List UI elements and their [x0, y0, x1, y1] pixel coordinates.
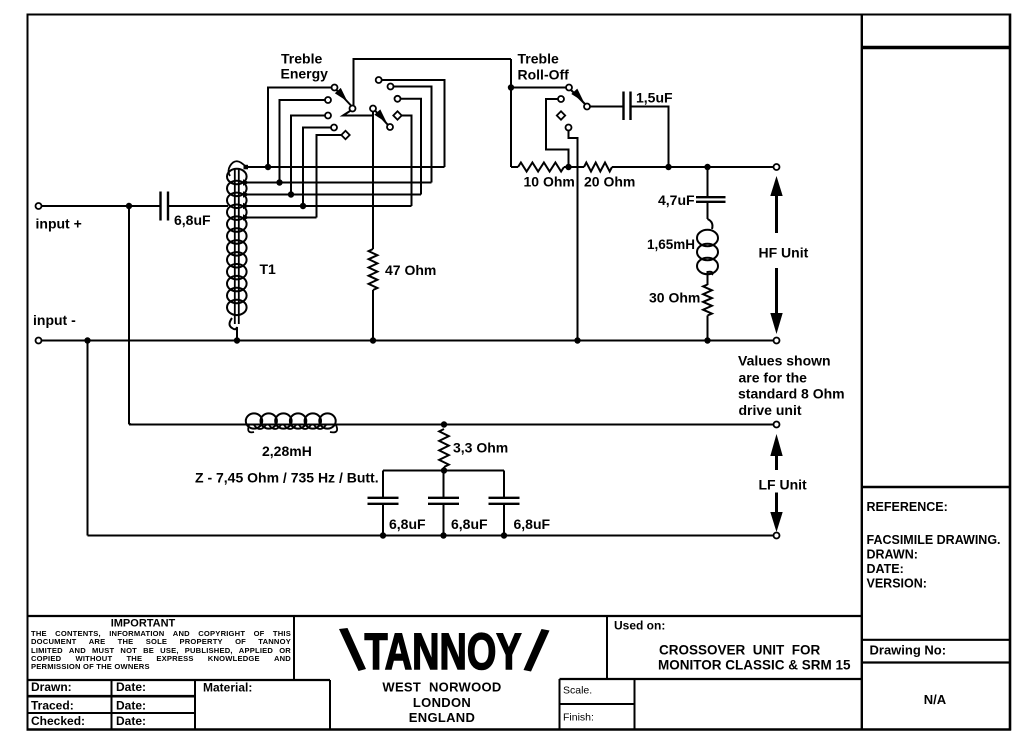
svg-text:standard 8 Ohm: standard 8 Ohm	[738, 386, 845, 402]
svg-text:Date:: Date:	[116, 680, 146, 694]
svg-text:Energy: Energy	[281, 66, 329, 82]
svg-text:6,8uF: 6,8uF	[514, 516, 551, 532]
svg-text:3,3 Ohm: 3,3 Ohm	[453, 440, 508, 456]
svg-text:DRAWN:: DRAWN:	[867, 548, 918, 562]
svg-text:Finish:: Finish:	[563, 712, 594, 724]
svg-text:input -: input -	[33, 312, 76, 328]
svg-text:Date:: Date:	[116, 714, 146, 728]
svg-text:47 Ohm: 47 Ohm	[385, 262, 436, 278]
svg-text:Used on:: Used on:	[614, 619, 665, 633]
svg-text:drive unit: drive unit	[739, 402, 802, 418]
svg-text:CROSSOVER UNIT FOR: CROSSOVER UNIT FOR	[659, 643, 821, 658]
svg-text:20 Ohm: 20 Ohm	[584, 174, 635, 190]
svg-text:VERSION:: VERSION:	[867, 577, 927, 591]
svg-text:IMPORTANT: IMPORTANT	[111, 618, 176, 630]
svg-text:30 Ohm: 30 Ohm	[649, 290, 700, 306]
svg-text:2,28mH: 2,28mH	[262, 443, 312, 459]
svg-text:N/A: N/A	[924, 692, 947, 707]
svg-text:are for the: are for the	[739, 370, 808, 386]
svg-text:Z - 7,45 Ohm / 735 Hz / Butt.: Z - 7,45 Ohm / 735 Hz / Butt.	[195, 470, 379, 486]
svg-text:Date:: Date:	[116, 699, 146, 713]
svg-text:Drawn:: Drawn:	[31, 680, 72, 694]
svg-text:1,5uF: 1,5uF	[636, 90, 673, 106]
svg-text:T1: T1	[260, 261, 277, 277]
svg-text:Scale.: Scale.	[563, 685, 592, 697]
svg-text:Roll-Off: Roll-Off	[518, 67, 570, 83]
svg-text:Treble: Treble	[281, 51, 322, 67]
svg-text:WEST NORWOOD: WEST NORWOOD	[382, 680, 501, 695]
svg-text:Checked:: Checked:	[31, 714, 85, 728]
svg-text:1,65mH: 1,65mH	[647, 237, 695, 252]
svg-text:DATE:: DATE:	[867, 562, 904, 576]
svg-text:Treble: Treble	[518, 51, 559, 67]
svg-text:Material:: Material:	[203, 681, 252, 695]
svg-text:input +: input +	[36, 216, 82, 232]
svg-text:Values shown: Values shown	[738, 353, 831, 369]
svg-text:6,8uF: 6,8uF	[451, 516, 488, 532]
svg-text:FACSIMILE DRAWING.: FACSIMILE DRAWING.	[867, 533, 1001, 547]
svg-text:ENGLAND: ENGLAND	[409, 710, 475, 725]
svg-text:MONITOR CLASSIC & SRM 15: MONITOR CLASSIC & SRM 15	[658, 658, 851, 673]
svg-text:4,7uF: 4,7uF	[658, 192, 695, 208]
svg-text:HF Unit: HF Unit	[759, 245, 809, 261]
svg-text:TANNOY: TANNOY	[365, 623, 522, 680]
svg-text:LONDON: LONDON	[413, 695, 471, 710]
svg-text:Traced:: Traced:	[31, 699, 74, 713]
svg-text:6,8uF: 6,8uF	[389, 516, 426, 532]
svg-text:LF Unit: LF Unit	[759, 477, 808, 493]
svg-text:Drawing No:: Drawing No:	[870, 643, 947, 658]
svg-text:REFERENCE:: REFERENCE:	[867, 500, 948, 514]
svg-text:6,8uF: 6,8uF	[174, 212, 211, 228]
svg-text:10 Ohm: 10 Ohm	[524, 174, 575, 190]
